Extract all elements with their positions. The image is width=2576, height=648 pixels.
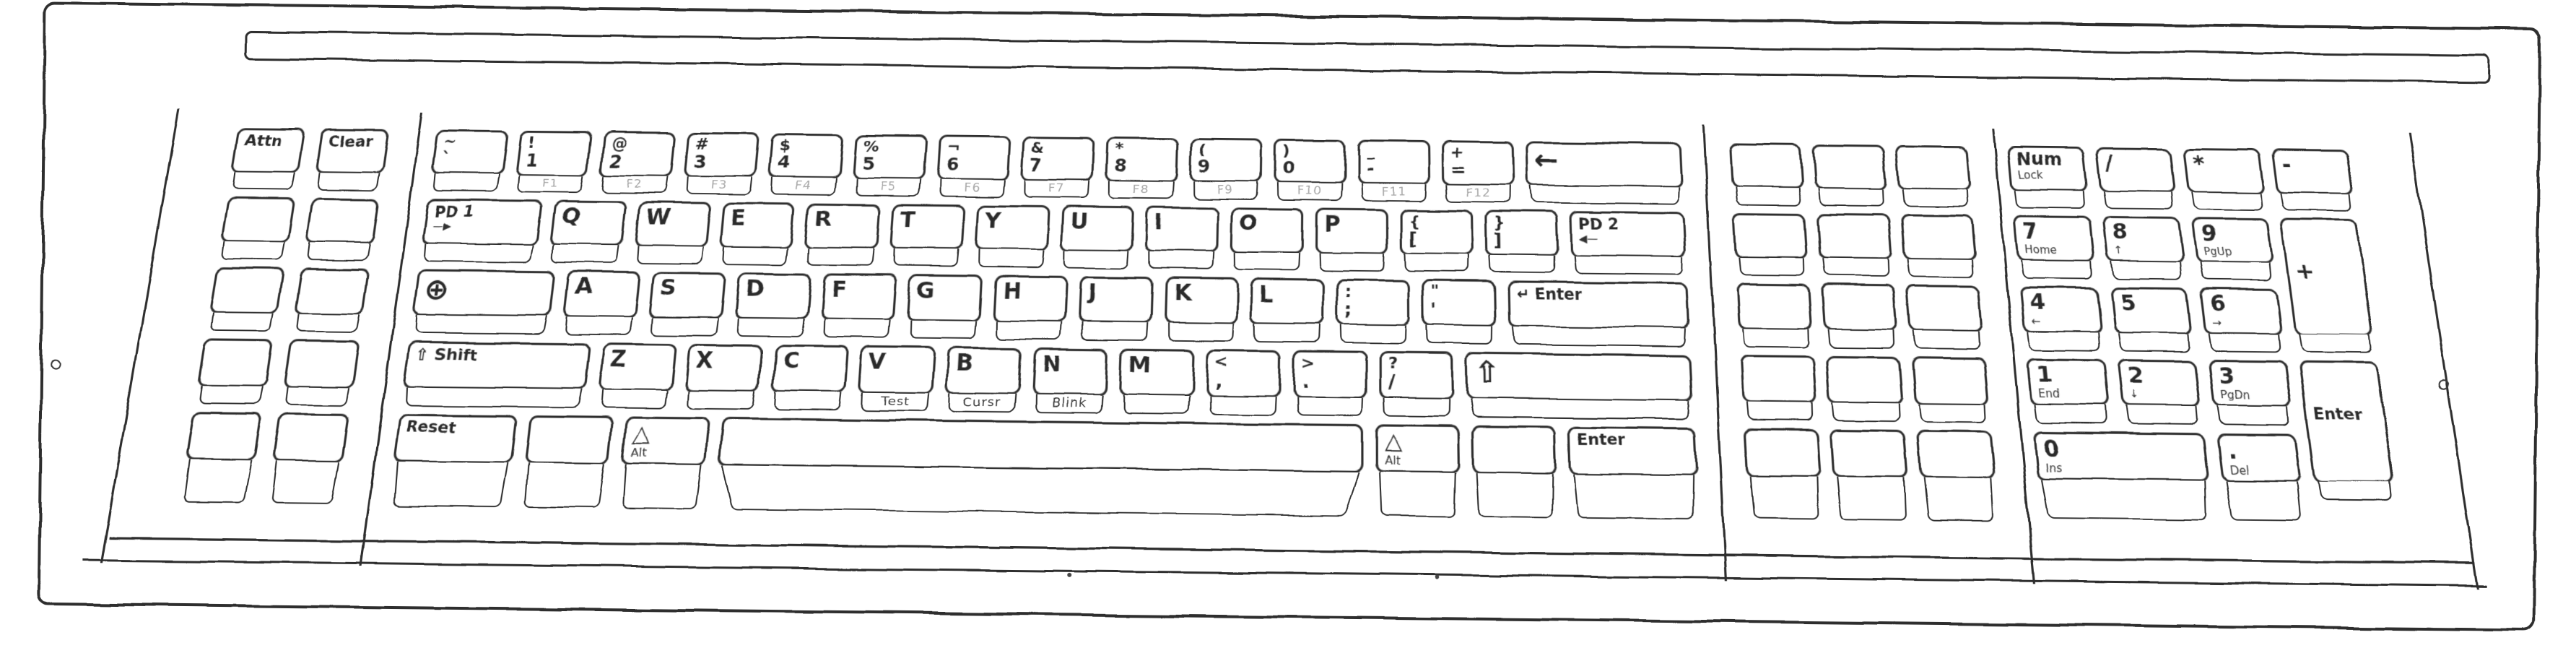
key-6: ¬6F6 — [936, 135, 1011, 181]
key-legend: 1End — [2035, 363, 2060, 400]
key-front — [1530, 186, 1679, 204]
key-pd1: PD 1—▶ — [422, 199, 543, 246]
key-front — [232, 172, 296, 190]
bezel-front-edge-line — [109, 537, 2475, 564]
key-front — [1902, 189, 1968, 207]
key-front — [525, 464, 605, 509]
key-g: G — [906, 275, 983, 322]
key-legend: I — [1154, 212, 1163, 234]
key-front — [978, 250, 1045, 269]
key-7: &7F7 — [1021, 136, 1095, 181]
key-quote: "' — [1422, 280, 1496, 327]
key-front — [1918, 404, 1987, 423]
key-legend: ~` — [440, 134, 458, 168]
key-legend: Attn — [243, 133, 283, 149]
key-front — [271, 461, 339, 504]
key-5: %5F5 — [852, 134, 928, 180]
pf-blank-block — [1729, 143, 1998, 506]
key-n: NBlink — [1032, 347, 1108, 396]
key-3: #3F3 — [684, 132, 760, 178]
key-front — [2110, 262, 2182, 280]
key-front — [1168, 323, 1235, 342]
key-legend: Enter — [1577, 432, 1625, 449]
key-num-minus: - — [2271, 149, 2354, 194]
key-clear: Clear — [315, 129, 389, 174]
key-front — [1739, 258, 1805, 277]
key-blank — [305, 197, 380, 243]
key-front — [393, 462, 508, 508]
key-legend: {[ — [1409, 214, 1420, 249]
key-num-4: 4← — [2019, 286, 2102, 334]
case-speck — [1435, 575, 1440, 579]
key-front — [722, 247, 789, 266]
key-front — [1470, 399, 1689, 420]
key-front — [622, 465, 702, 509]
key-front — [996, 321, 1063, 340]
key-front: Test — [861, 393, 929, 412]
key-j: J — [1078, 276, 1154, 324]
key-9: (9F9 — [1189, 138, 1263, 183]
key-w: W — [634, 201, 711, 247]
numpad-block: NumLock/*-7Home8↑9PgUp+4←56→1End2↓3PgDnE… — [2007, 146, 2395, 483]
key-blank — [1916, 430, 1996, 480]
key-front — [1234, 253, 1300, 272]
key-legend: + — [2294, 261, 2316, 284]
key-front — [1512, 327, 1686, 347]
key-d: D — [734, 272, 812, 320]
key-legend: V — [869, 351, 887, 375]
case-speck — [1067, 573, 1071, 577]
key-legend: Enter — [2313, 405, 2363, 422]
key-front: Blink — [1035, 394, 1103, 414]
key-front — [1837, 478, 1907, 521]
key-legend: #3 — [693, 137, 710, 171]
key-num-1: 1End — [2026, 358, 2110, 406]
key-shift-left: ⇧ Shift — [402, 341, 591, 391]
key-m: M — [1118, 348, 1194, 397]
key-front — [910, 321, 977, 340]
key-legend: "' — [1430, 285, 1439, 320]
key-legend: S — [659, 277, 677, 300]
key-front — [1832, 403, 1900, 423]
key-e: E — [719, 202, 796, 248]
key-num-9: 9PgUp — [2191, 217, 2274, 264]
cable-retainer-bar — [245, 31, 2491, 84]
key-front — [1735, 188, 1801, 206]
key-num-8: 8↑ — [2102, 216, 2184, 263]
key-legend: .Del — [2226, 439, 2249, 476]
key-front — [405, 388, 582, 408]
key-front — [1823, 259, 1889, 277]
key-legend: △Alt — [1385, 430, 1402, 467]
key-blank — [1895, 145, 1971, 191]
key-front — [651, 318, 719, 337]
key-front — [1383, 398, 1450, 418]
key-front — [1913, 331, 1980, 350]
key-legend: F — [830, 278, 847, 301]
sketch-canvas: AttnClear ~`!1F1@2F2#3F3$4F4%5F5¬6F6&7F7… — [0, 0, 2576, 648]
key-f: F — [820, 273, 897, 321]
key-front — [1149, 251, 1214, 270]
key-front — [1907, 259, 1975, 278]
key-legend: )0 — [1282, 144, 1295, 178]
key-front — [1489, 255, 1554, 274]
key-front — [285, 386, 350, 406]
key-bracket-left: {[ — [1400, 209, 1474, 256]
key-legend: T — [900, 209, 916, 231]
key-legend: :; — [1345, 284, 1352, 319]
key-num-6: 6→ — [2199, 288, 2283, 335]
key-blank — [1736, 283, 1813, 331]
key-front — [1082, 322, 1148, 341]
key-front — [1574, 256, 1682, 275]
key-legend: 4← — [2029, 291, 2048, 327]
key-legend: 9PgUp — [2201, 223, 2233, 258]
key-front: F1 — [517, 175, 584, 193]
key-legend: J — [1088, 281, 1097, 304]
left-function-block: AttnClear — [180, 128, 390, 488]
key-legend: Q — [560, 205, 580, 228]
key-front — [1063, 251, 1130, 269]
key-legend: U — [1069, 210, 1088, 233]
key-front — [2299, 334, 2372, 353]
key-legend: >. — [1302, 355, 1315, 392]
key-front — [1827, 330, 1894, 349]
key-front — [552, 246, 619, 264]
key-4: $4F4 — [767, 133, 843, 178]
key-blank — [1812, 144, 1888, 190]
key-front: F11 — [1362, 184, 1427, 202]
keyboard-case: AttnClear ~`!1F1@2F2#3F3$4F4%5F5¬6F6&7F7… — [38, 1, 2542, 631]
key-blank — [219, 196, 295, 243]
key-front — [2318, 482, 2392, 501]
key-front — [1209, 397, 1276, 416]
key-num-multiply: * — [2183, 148, 2266, 194]
key-slash: ?/ — [1379, 351, 1454, 399]
key-legend: Y — [984, 209, 1001, 232]
key-front — [1426, 326, 1492, 345]
key-shift-lock: ⊕ — [412, 269, 555, 317]
key-front — [637, 246, 704, 265]
key-legend: G — [916, 280, 936, 303]
key-enter-bottom: Enter — [1568, 426, 1698, 476]
key-front — [1573, 475, 1694, 520]
key-u: U — [1060, 205, 1135, 251]
key-blank — [294, 268, 370, 316]
key-legend: NumLock — [2016, 151, 2063, 181]
key-legend: 5 — [2119, 292, 2137, 315]
key-blank — [1740, 355, 1817, 403]
key-h: H — [992, 275, 1068, 323]
main-typing-block: ~`!1F1@2F2#3F3$4F4%5F5¬6F6&7F7*8F8(9F9)0… — [389, 130, 1699, 503]
key-alt-right: △Alt — [1375, 424, 1460, 474]
key-legend: }] — [1493, 215, 1505, 249]
key-legend: 0Ins — [2042, 436, 2063, 474]
key-o: O — [1230, 207, 1304, 254]
key-front — [1924, 478, 1994, 522]
key-legend: += — [1450, 145, 1466, 179]
key-front — [600, 390, 669, 410]
key-front: F6 — [939, 180, 1005, 198]
key-front: F4 — [770, 178, 837, 196]
key-legend: N — [1042, 353, 1061, 376]
key-blank — [1733, 212, 1809, 259]
key-2: @2F2 — [599, 131, 676, 177]
key-blank — [1729, 143, 1804, 189]
key-front — [209, 314, 274, 332]
key-legend: B — [955, 352, 973, 376]
key-front — [1340, 325, 1406, 344]
key-front — [1750, 476, 1819, 519]
key-legend: $4 — [777, 138, 792, 172]
key-legend: &7 — [1030, 141, 1045, 175]
key-front — [1254, 324, 1320, 343]
key-front — [198, 386, 263, 405]
key-front — [221, 242, 285, 261]
key-legend: 2↓ — [2126, 364, 2146, 401]
key-blank — [283, 340, 360, 388]
key-front: F9 — [1193, 182, 1258, 200]
key-grave: ~` — [430, 130, 508, 176]
key-legend: X — [695, 349, 715, 373]
key-front: Cursr — [949, 394, 1017, 413]
key-front — [1818, 189, 1884, 207]
key-front — [1742, 329, 1809, 348]
key-front — [892, 249, 959, 268]
key-semicolon: :; — [1336, 279, 1411, 327]
key-legend: A — [573, 276, 593, 299]
key-front — [2125, 406, 2199, 425]
screw-dot — [2439, 380, 2449, 390]
key-a: A — [562, 271, 641, 319]
key-legend: %5 — [861, 139, 879, 173]
key-legend: Reset — [405, 420, 458, 437]
key-equals: +=F12 — [1442, 140, 1515, 186]
key-blank — [1471, 425, 1557, 475]
key-legend: ← — [1534, 146, 1559, 176]
key-legend: ⊕ — [422, 275, 451, 306]
key-front — [2118, 333, 2190, 352]
key-space — [718, 418, 1364, 473]
key-front — [2041, 480, 2207, 521]
key-blank — [1744, 428, 1822, 478]
key-comma: <, — [1206, 349, 1281, 397]
key-blank — [1905, 285, 1983, 332]
key-legend: *8 — [1114, 142, 1128, 176]
block-divider-line — [1702, 125, 1727, 581]
key-z: Z — [598, 343, 677, 392]
key-1: !1F1 — [515, 131, 592, 176]
key-legend: ↵ Enter — [1516, 285, 1582, 302]
key-num-plus: + — [2280, 218, 2374, 337]
key-0: )0F10 — [1274, 139, 1346, 184]
key-p: P — [1315, 208, 1388, 255]
key-front — [2103, 191, 2174, 209]
key-front: F2 — [601, 176, 668, 194]
key-backspace: ← — [1526, 141, 1684, 188]
key-legend: (9 — [1198, 142, 1211, 176]
key-blank — [1900, 214, 1977, 261]
key-legend: !1 — [524, 136, 541, 170]
key-legend: 8↑ — [2111, 221, 2130, 256]
key-num-divide: / — [2095, 147, 2177, 193]
key-front — [807, 248, 874, 267]
key-legend: W — [645, 206, 671, 228]
key-bracket-right: }] — [1484, 209, 1559, 256]
key-front — [2209, 334, 2281, 353]
key-legend: P — [1324, 213, 1340, 236]
key-deck: AttnClear ~`!1F1@2F2#3F3$4F4%5F5¬6F6&7F7… — [0, 126, 2576, 614]
key-legend: 3PgDn — [2217, 365, 2251, 402]
key-num-period: .Del — [2216, 433, 2302, 483]
key-legend: <, — [1214, 355, 1229, 391]
key-q: Q — [549, 200, 627, 246]
key-num-lock: NumLock — [2007, 146, 2088, 191]
key-front — [2021, 261, 2092, 280]
key-front: F5 — [855, 178, 921, 196]
key-front — [565, 317, 632, 336]
key-blank — [524, 415, 614, 465]
key-legend: C — [782, 350, 800, 373]
key-num-7: 7Home — [2013, 215, 2095, 262]
key-legend: K — [1173, 282, 1191, 305]
key-front — [1123, 395, 1190, 415]
key-front — [823, 319, 890, 338]
key-t: T — [889, 204, 965, 250]
key-front: F10 — [1277, 183, 1343, 201]
key-legend: * — [2192, 153, 2206, 176]
key-num-5: 5 — [2110, 287, 2193, 334]
key-front — [1404, 254, 1469, 273]
key-legend: 6→ — [2209, 293, 2228, 329]
key-front — [414, 315, 547, 334]
key-front — [687, 391, 756, 410]
key-legend: - — [2280, 154, 2292, 176]
key-front — [317, 173, 380, 191]
key-blank — [1816, 213, 1893, 260]
key-front — [1746, 402, 1814, 422]
screw-dot — [50, 360, 60, 370]
key-front — [2281, 194, 2352, 212]
key-legend: Clear — [327, 134, 374, 150]
key-front — [432, 174, 500, 192]
key-front — [424, 244, 534, 263]
key-blank — [1821, 284, 1898, 332]
key-x: X — [684, 344, 763, 392]
key-legend: E — [730, 207, 747, 229]
key-legend: D — [745, 277, 765, 301]
key-enter: ↵ Enter — [1507, 280, 1689, 329]
key-front — [1476, 473, 1554, 518]
block-divider-line — [2409, 132, 2479, 589]
key-attn: Attn — [231, 128, 306, 173]
key-blank — [1911, 357, 1990, 405]
key-blank — [208, 267, 284, 315]
key-pd2: PD 2◀— — [1569, 211, 1686, 258]
key-front — [774, 392, 843, 411]
key-front — [721, 466, 1359, 517]
key-legend: / — [2104, 152, 2114, 175]
key-front — [1296, 397, 1363, 417]
key-s: S — [648, 272, 726, 319]
key-legend: ⇧ — [1474, 357, 1500, 389]
key-blank — [272, 412, 350, 462]
key-front — [2226, 481, 2302, 522]
key-legend: @2 — [609, 137, 628, 170]
key-front: F7 — [1024, 181, 1089, 199]
key-legend: R — [814, 208, 833, 230]
key-reset: Reset — [393, 414, 518, 464]
key-legend: ?/ — [1388, 356, 1398, 392]
key-num-0: 0Ins — [2033, 431, 2210, 482]
key-front — [1319, 254, 1385, 272]
key-legend: PD 1—▶ — [432, 204, 475, 233]
key-period: >. — [1292, 350, 1367, 399]
key-front: F12 — [1445, 185, 1511, 203]
key-v: VTest — [858, 345, 936, 394]
key-blank — [184, 412, 263, 461]
key-l: L — [1250, 278, 1324, 326]
key-legend: ¬6 — [945, 140, 960, 174]
key-front — [306, 243, 370, 262]
key-front — [2014, 191, 2085, 209]
key-front — [2216, 407, 2290, 426]
key-minus: _-F11 — [1358, 139, 1431, 185]
key-legend: L — [1259, 283, 1274, 306]
key-c: C — [771, 345, 849, 393]
key-alt-left: △Alt — [621, 416, 710, 466]
key-front — [737, 319, 805, 337]
key-blank — [196, 339, 274, 387]
key-front — [1379, 472, 1456, 517]
key-num-enter: Enter — [2298, 360, 2394, 483]
key-front — [2192, 193, 2263, 211]
key-legend: O — [1239, 212, 1258, 235]
key-num-3: 3PgDn — [2208, 360, 2293, 408]
key-legend: ⇧ Shift — [414, 346, 477, 363]
key-front: F3 — [686, 177, 752, 195]
key-legend: Z — [609, 348, 627, 372]
key-legend: M — [1128, 353, 1152, 377]
key-b: BCursr — [945, 347, 1022, 395]
key-front — [183, 460, 252, 504]
key-front — [2027, 332, 2099, 351]
key-legend: PD 2◀— — [1578, 216, 1619, 245]
block-divider-line — [100, 109, 180, 563]
key-i: I — [1145, 207, 1219, 253]
key-r: R — [804, 203, 881, 249]
key-legend: _- — [1367, 144, 1375, 178]
key-8: *8F8 — [1105, 137, 1178, 182]
key-front — [2200, 263, 2272, 282]
key-shift-right: ⇧ — [1466, 352, 1693, 402]
key-blank — [1830, 429, 1909, 479]
key-front: F8 — [1108, 181, 1174, 199]
key-legend: △Alt — [630, 422, 651, 459]
key-legend: 7Home — [2022, 220, 2058, 256]
key-y: Y — [975, 204, 1050, 251]
key-k: K — [1164, 277, 1239, 324]
key-front — [296, 314, 360, 333]
key-blank — [1825, 355, 1903, 404]
key-legend: H — [1002, 280, 1022, 303]
key-front — [2035, 405, 2107, 425]
key-num-2: 2↓ — [2117, 359, 2201, 407]
